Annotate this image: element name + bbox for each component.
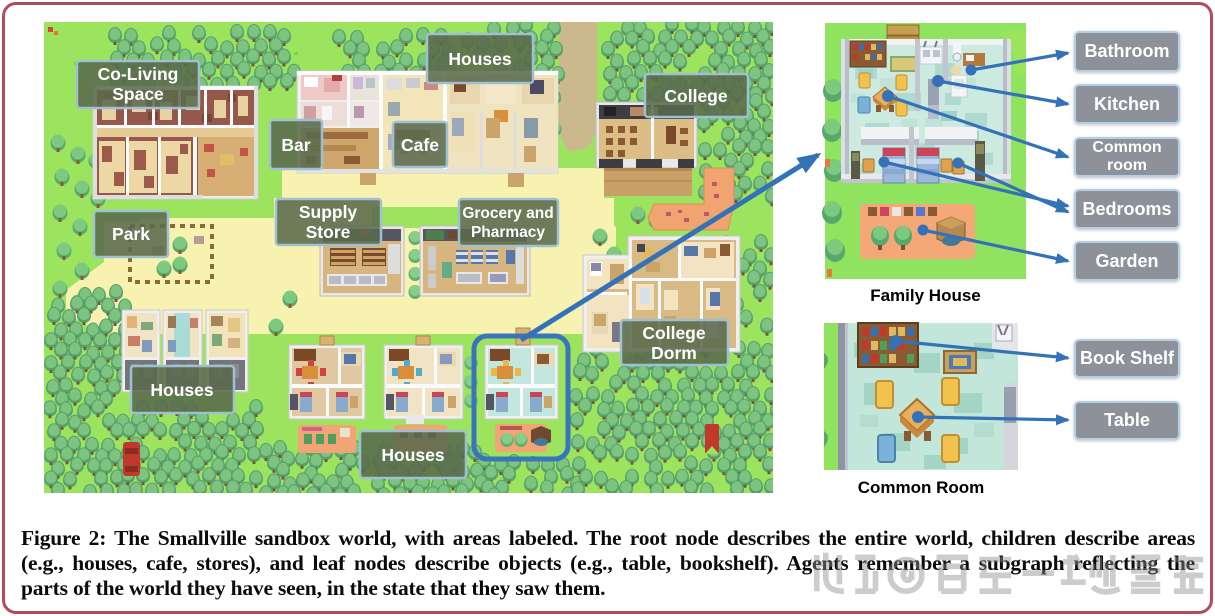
- svg-text:Houses: Houses: [150, 380, 213, 400]
- svg-text:Space: Space: [112, 84, 164, 104]
- svg-text:Houses: Houses: [448, 49, 511, 69]
- svg-text:Grocery and: Grocery and: [462, 205, 553, 222]
- svg-text:Bar: Bar: [281, 135, 310, 155]
- svg-text:Supply: Supply: [299, 202, 358, 222]
- svg-text:College: College: [664, 86, 727, 106]
- svg-text:Dorm: Dorm: [651, 343, 697, 363]
- svg-text:Houses: Houses: [381, 445, 444, 465]
- svg-text:Store: Store: [306, 222, 351, 242]
- svg-text:Pharmacy: Pharmacy: [471, 224, 545, 241]
- svg-text:Cafe: Cafe: [401, 135, 439, 155]
- svg-text:Co-Living: Co-Living: [98, 64, 179, 84]
- svg-text:Park: Park: [112, 224, 150, 244]
- svg-text:College: College: [642, 323, 705, 343]
